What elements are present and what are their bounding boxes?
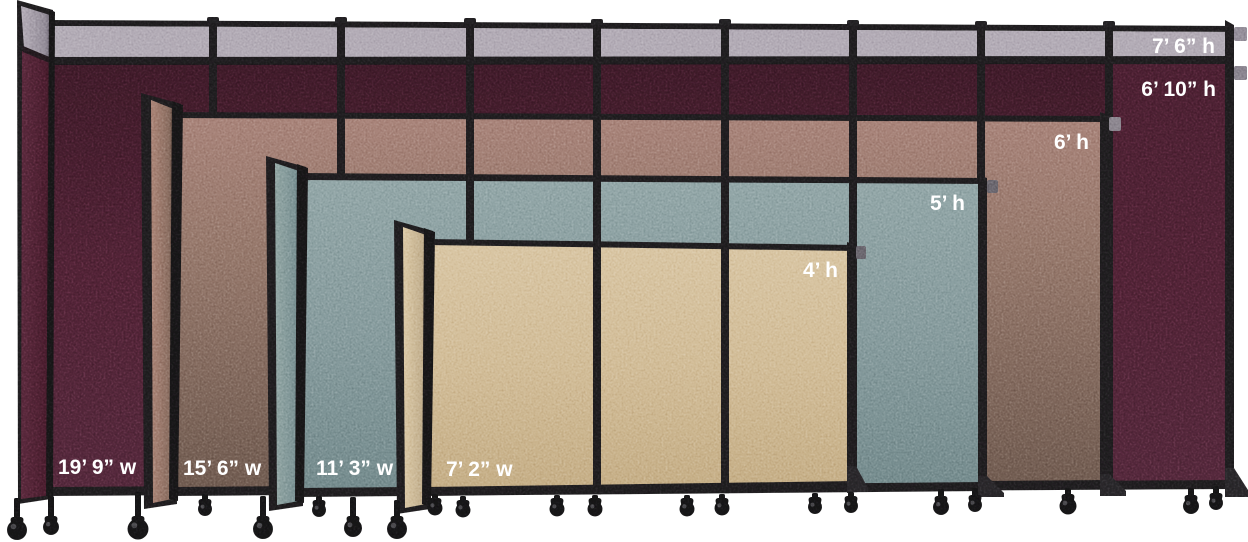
svg-text:6’ 10” h: 6’ 10” h — [1141, 78, 1216, 101]
svg-text:11’ 3” w: 11’ 3” w — [316, 457, 394, 480]
svg-text:4’ h: 4’ h — [803, 259, 838, 282]
svg-text:5’ h: 5’ h — [930, 192, 965, 215]
svg-text:19’ 9” w: 19’ 9” w — [58, 456, 137, 479]
svg-text:15’ 6” w: 15’ 6” w — [183, 457, 262, 480]
svg-text:7’ 2” w: 7’ 2” w — [446, 458, 513, 481]
svg-text:7’ 6” h: 7’ 6” h — [1152, 35, 1215, 58]
svg-text:6’ h: 6’ h — [1054, 131, 1089, 154]
